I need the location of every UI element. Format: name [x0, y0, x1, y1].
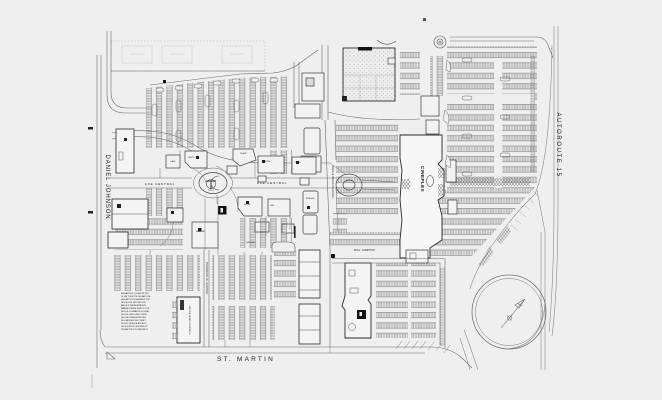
svg-text:PLACE: PLACE — [240, 152, 247, 155]
svg-text:TOUR: TOUR — [295, 162, 301, 164]
svg-text:DE LES CRILLONS COMPL: DE LES CRILLONS COMPL — [121, 314, 148, 316]
svg-text:DANIEL JOHNSON: DANIEL JOHNSON — [104, 154, 110, 219]
svg-text:GALERIE: GALERIE — [246, 241, 255, 244]
svg-text:BALLE II PRESENTATION: BALLE II PRESENTATION — [121, 304, 146, 307]
svg-text:LES MOTEL BITORE STE: LES MOTEL BITORE STE — [121, 302, 146, 304]
svg-text:24 RM TOILETTE DEGAR STE: 24 RM TOILETTE DEGAR STE — [121, 295, 151, 298]
svg-text:CENTRE: CENTRE — [262, 161, 271, 163]
svg-text:DE BAPTTE B TOMBLINE B: DE BAPTTE B TOMBLINE B — [121, 328, 148, 331]
svg-text:LES ARTS ROCHEMENT STE: LES ARTS ROCHEMENT STE — [121, 298, 150, 301]
svg-text:RABINETTERIE SIMPOT STE: RABINETTERIE SIMPOT STE — [121, 307, 150, 310]
svg-text:AXE CENTRAL: AXE CENTRAL — [145, 182, 175, 186]
svg-text:HOTEL: HOTEL — [244, 204, 252, 206]
svg-text:DE LES COMPARTE FONTAL: DE LES COMPARTE FONTAL — [121, 310, 150, 313]
svg-text:AVENUE PIERRE PELADEAU: AVENUE PIERRE PELADEAU — [331, 166, 334, 199]
svg-text:DE LES TREMOLINS PEN: DE LES TREMOLINS PEN — [121, 317, 146, 319]
svg-text:DE L ATELIER DE COMPT: DE L ATELIER DE COMPT — [121, 319, 147, 322]
svg-text:AUTOROUTE 15: AUTOROUTE 15 — [555, 112, 561, 177]
svg-text:CINEPLEX: CINEPLEX — [420, 166, 425, 193]
svg-text:DE LES PENLES A FONCT: DE LES PENLES A FONCT — [121, 322, 147, 325]
svg-text:BUREAU: BUREAU — [306, 197, 315, 200]
svg-text:SPA: SPA — [270, 204, 275, 207]
svg-text:RESTO: RESTO — [188, 157, 195, 159]
svg-text:MEGAPOLIS LOCATION STE: MEGAPOLIS LOCATION STE — [121, 292, 150, 295]
svg-text:CAFE: CAFE — [170, 160, 176, 163]
svg-text:BOUL. COMPTOIR: BOUL. COMPTOIR — [354, 249, 375, 252]
svg-text:CENTRE SPORTS EXPERTS: CENTRE SPORTS EXPERTS — [188, 305, 190, 335]
svg-text:PROMENADE DU QUARTIER: PROMENADE DU QUARTIER — [205, 262, 208, 295]
svg-text:ST. MARTIN: ST. MARTIN — [217, 356, 275, 363]
svg-text:DE MOLESTE LESTENS ST: DE MOLESTE LESTENS ST — [121, 326, 148, 328]
svg-text:MARCHE: MARCHE — [196, 230, 205, 233]
